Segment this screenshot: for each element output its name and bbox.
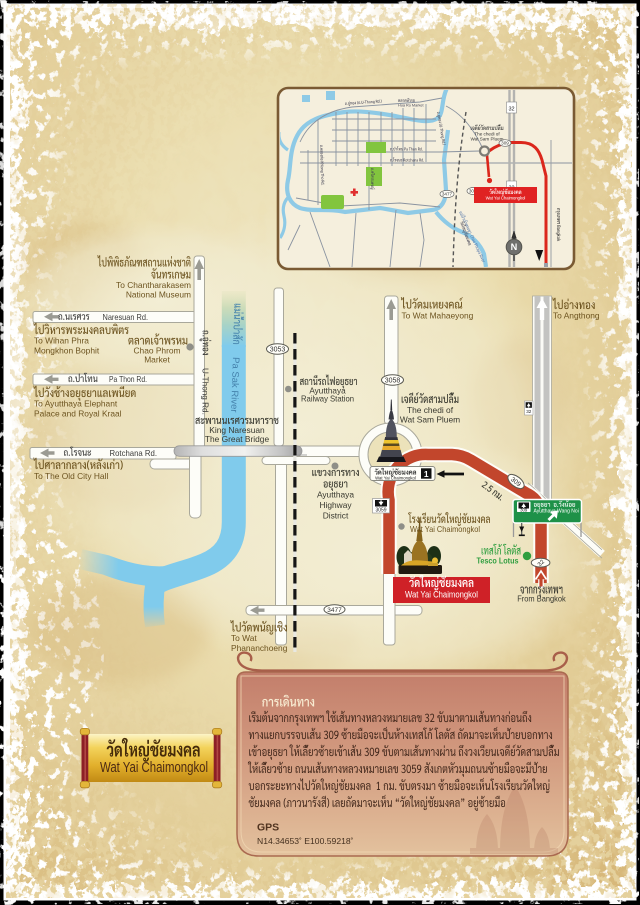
svg-text:3058: 3058 <box>385 377 401 384</box>
svg-text:32: 32 <box>508 107 514 113</box>
svg-text:Pa Sak River: Pa Sak River <box>228 357 241 413</box>
svg-text:Rotchana Rd.: Rotchana Rd. <box>110 449 158 458</box>
svg-text:To Chantharakasem: To Chantharakasem <box>116 280 191 290</box>
svg-text:Highway: Highway <box>319 500 352 510</box>
svg-text:Wat Yai Chaimongkol: Wat Yai Chaimongkol <box>486 196 526 201</box>
svg-text:GPS: GPS <box>257 822 279 834</box>
svg-text:309: 309 <box>520 507 528 512</box>
svg-text:32: 32 <box>526 409 532 414</box>
svg-text:Market: Market <box>144 355 170 365</box>
svg-text:Naresuan Rd.: Naresuan Rd. <box>103 313 149 322</box>
svg-text:District: District <box>323 511 349 521</box>
svg-text:To Wat Mahaeyong: To Wat Mahaeyong <box>402 311 474 321</box>
svg-text:3477: 3477 <box>442 192 453 197</box>
svg-text:The Great Bridge: The Great Bridge <box>205 434 270 444</box>
svg-text:Wat Yai Chaimongkol: Wat Yai Chaimongkol <box>410 524 480 534</box>
svg-text:3059: 3059 <box>375 508 386 514</box>
svg-text:3053: 3053 <box>270 346 286 353</box>
svg-text:Wat Yai Chaimongkol: Wat Yai Chaimongkol <box>100 759 208 776</box>
svg-text:Wat Sam Pluem: Wat Sam Pluem <box>470 137 503 142</box>
svg-text:U-Thong Rd.: U-Thong Rd. <box>201 368 210 415</box>
svg-text:Wat Yai Chaimongkol: Wat Yai Chaimongkol <box>405 590 478 600</box>
svg-text:From Bangkok: From Bangkok <box>517 595 566 604</box>
svg-text:N: N <box>511 242 518 252</box>
svg-text:Railway Station: Railway Station <box>301 395 354 404</box>
svg-text:To Ayutthaya Elephant: To Ayutthaya Elephant <box>34 399 118 409</box>
svg-text:Wat Yai Chaimongkol: Wat Yai Chaimongkol <box>375 475 416 480</box>
svg-text:3477: 3477 <box>327 607 342 614</box>
svg-text:N14.34653˚ E100.59218˚: N14.34653˚ E100.59218˚ <box>257 836 354 846</box>
svg-text:Wat Sam Pluem: Wat Sam Pluem <box>400 415 460 425</box>
svg-text:Phananchoeng: Phananchoeng <box>231 643 288 653</box>
svg-text:Pa Thon Rd.: Pa Thon Rd. <box>109 375 147 384</box>
svg-text:Mongkhon Bophit: Mongkhon Bophit <box>34 346 100 356</box>
svg-text:1: 1 <box>424 469 429 479</box>
svg-text:To The Old City Hall: To The Old City Hall <box>34 471 108 481</box>
svg-text:To Wat: To Wat <box>231 633 257 643</box>
svg-text:Palace and Royal Kraal: Palace and Royal Kraal <box>34 409 122 419</box>
svg-text:To Angthong: To Angthong <box>553 311 600 321</box>
svg-text:Hua Ro Market: Hua Ro Market <box>398 104 424 108</box>
svg-text:Ayutthaya: Ayutthaya <box>317 490 354 500</box>
svg-text:The chedi of: The chedi of <box>407 405 454 415</box>
svg-text:Tesco Lotus: Tesco Lotus <box>477 556 519 566</box>
svg-text:To Wihan Phra: To Wihan Phra <box>34 336 89 346</box>
svg-text:National Museum: National Museum <box>126 290 191 300</box>
